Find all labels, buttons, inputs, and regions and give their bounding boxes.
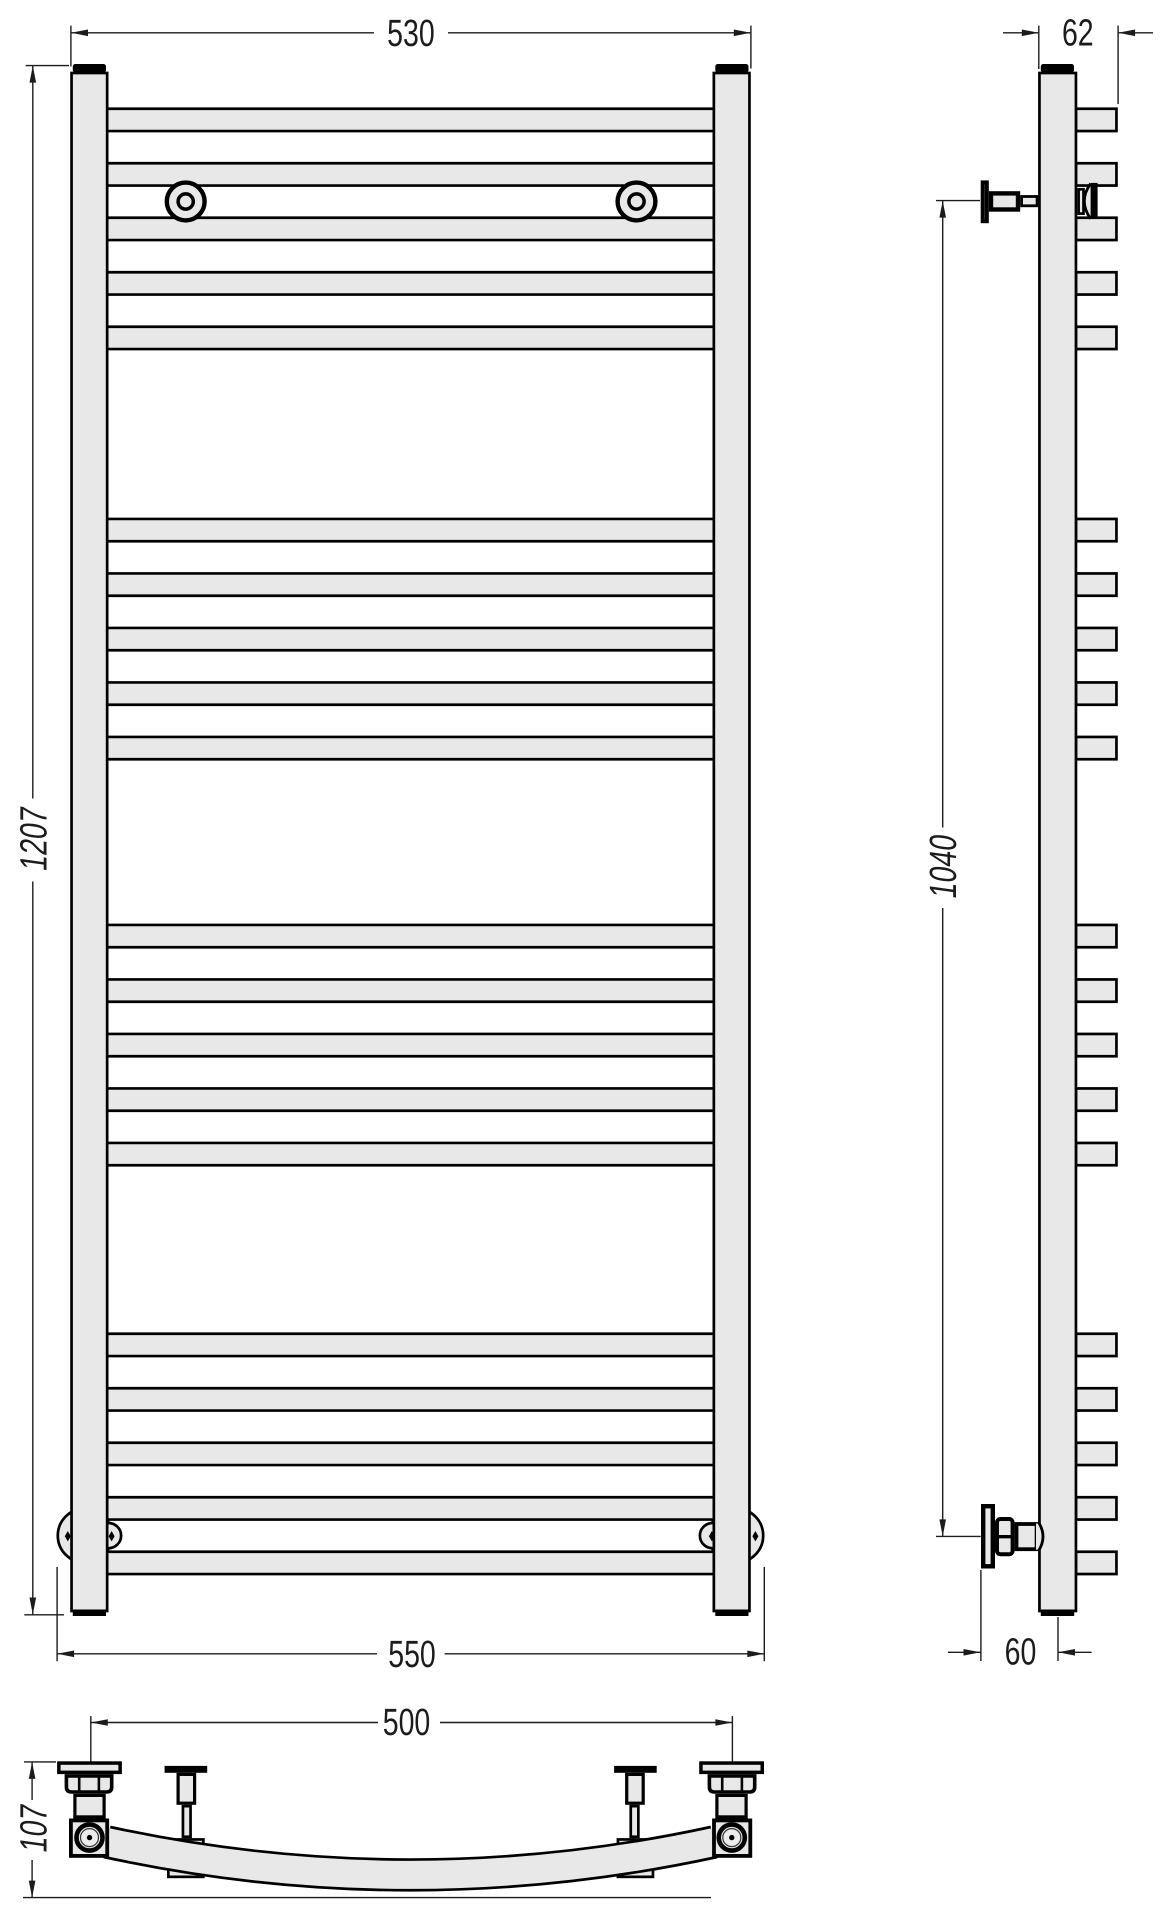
svg-text:1040: 1040 [923,832,965,901]
svg-text:500: 500 [383,1702,431,1744]
svg-text:60: 60 [1005,1631,1037,1673]
svg-text:62: 62 [1062,13,1094,55]
svg-text:1207: 1207 [13,804,55,873]
svg-text:550: 550 [388,1634,436,1676]
svg-text:530: 530 [387,13,435,55]
svg-text:107: 107 [14,1802,56,1855]
